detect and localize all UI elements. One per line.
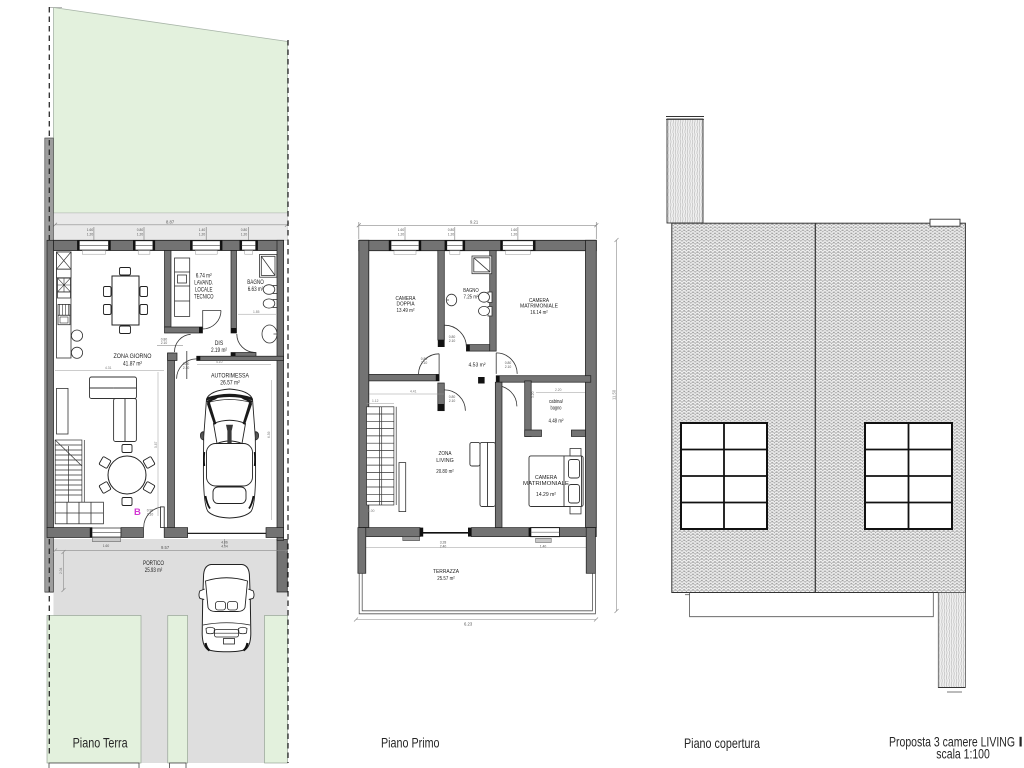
svg-text:0.801.20: 0.801.20 (241, 228, 248, 236)
svg-text:scala 1:100: scala 1:100 (936, 746, 990, 762)
svg-text:13.49 m²: 13.49 m² (397, 308, 415, 314)
svg-text:2.19 m²: 2.19 m² (211, 347, 227, 354)
svg-text:bagno: bagno (551, 406, 562, 412)
svg-text:26.57 m²: 26.57 m² (220, 379, 240, 386)
svg-text:6.74 m²: 6.74 m² (196, 273, 212, 280)
svg-text:4.064.04: 4.064.04 (221, 541, 228, 549)
svg-text:9.57: 9.57 (161, 545, 170, 550)
svg-text:BAGNO: BAGNO (247, 279, 264, 286)
svg-text:DIS: DIS (215, 340, 224, 347)
svg-text:5.87: 5.87 (154, 441, 158, 448)
svg-text:PORTICO: PORTICO (143, 560, 164, 567)
svg-text:0.802.10: 0.802.10 (449, 395, 456, 403)
svg-text:TERRAZZA: TERRAZZA (433, 569, 459, 575)
svg-text:1.85: 1.85 (253, 310, 260, 314)
svg-text:20.80 m²: 20.80 m² (436, 469, 454, 475)
svg-text:0.802.10: 0.802.10 (505, 361, 512, 369)
svg-text:4.10: 4.10 (216, 360, 223, 364)
svg-text:2.20: 2.20 (555, 388, 562, 392)
svg-text:1.60: 1.60 (103, 544, 110, 548)
svg-text:0.801.20: 0.801.20 (448, 228, 455, 236)
svg-text:16.14 m²: 16.14 m² (530, 310, 548, 316)
svg-text:25.93 m²: 25.93 m² (145, 567, 163, 574)
svg-text:4.53 m²: 4.53 m² (469, 363, 486, 369)
svg-text:1.601.20: 1.601.20 (87, 228, 94, 236)
svg-text:LOCALE: LOCALE (195, 287, 213, 294)
svg-text:9.21: 9.21 (470, 220, 479, 225)
svg-text:DOPPIA: DOPPIA (397, 302, 415, 308)
svg-text:0.802.10: 0.802.10 (449, 335, 456, 343)
svg-text:0.801.20: 0.801.20 (137, 228, 144, 236)
svg-text:0.902.10: 0.902.10 (147, 509, 154, 517)
svg-text:TECNICO: TECNICO (194, 294, 214, 301)
svg-text:14.29 m²: 14.29 m² (536, 492, 556, 498)
svg-text:CAMERA: CAMERA (535, 475, 557, 481)
svg-text:LAVAND.: LAVAND. (194, 280, 213, 287)
svg-text:LIVING: LIVING (436, 458, 454, 464)
svg-text:0.802.10: 0.802.10 (183, 362, 190, 370)
svg-text:0.802.10: 0.802.10 (421, 357, 428, 365)
svg-text:4.31: 4.31 (105, 366, 112, 370)
svg-text:6.59: 6.59 (267, 431, 271, 438)
svg-text:1.12: 1.12 (372, 399, 379, 403)
svg-text:4.41: 4.41 (410, 390, 417, 394)
svg-text:ZONA GIORNO: ZONA GIORNO (114, 353, 152, 360)
svg-text:Piano Primo: Piano Primo (381, 735, 440, 751)
svg-text:1.601.20: 1.601.20 (511, 228, 518, 236)
svg-text:MATRIMONIALE: MATRIMONIALE (520, 304, 558, 310)
svg-text:Piano Terra: Piano Terra (73, 735, 128, 751)
svg-text:cabina/: cabina/ (549, 399, 563, 405)
svg-text:6.23: 6.23 (464, 622, 473, 627)
svg-text:MATRIMONIALE: MATRIMONIALE (523, 481, 569, 487)
svg-text:41.87 m²: 41.87 m² (123, 360, 142, 367)
svg-text:7.25 m²: 7.25 m² (464, 294, 479, 300)
svg-text:1.00: 1.00 (368, 509, 375, 513)
svg-text:Piano copertura: Piano copertura (684, 735, 760, 751)
svg-text:11.50: 11.50 (611, 389, 616, 400)
svg-text:1.401.20: 1.401.20 (199, 228, 206, 236)
svg-text:6.63 m²: 6.63 m² (248, 286, 264, 293)
svg-text:1.40: 1.40 (540, 545, 547, 549)
svg-text:2.10: 2.10 (161, 341, 168, 345)
svg-text:8.87: 8.87 (166, 219, 175, 224)
svg-text:B: B (134, 507, 141, 518)
svg-text:ZONA: ZONA (439, 451, 452, 457)
svg-text:BAGNO: BAGNO (463, 288, 479, 294)
svg-text:1.601.20: 1.601.20 (398, 228, 405, 236)
svg-text:25.57 m²: 25.57 m² (437, 576, 455, 582)
svg-text:3.20: 3.20 (531, 391, 535, 398)
svg-text:2.04: 2.04 (59, 567, 63, 574)
svg-text:4.48 m²: 4.48 m² (549, 419, 564, 425)
